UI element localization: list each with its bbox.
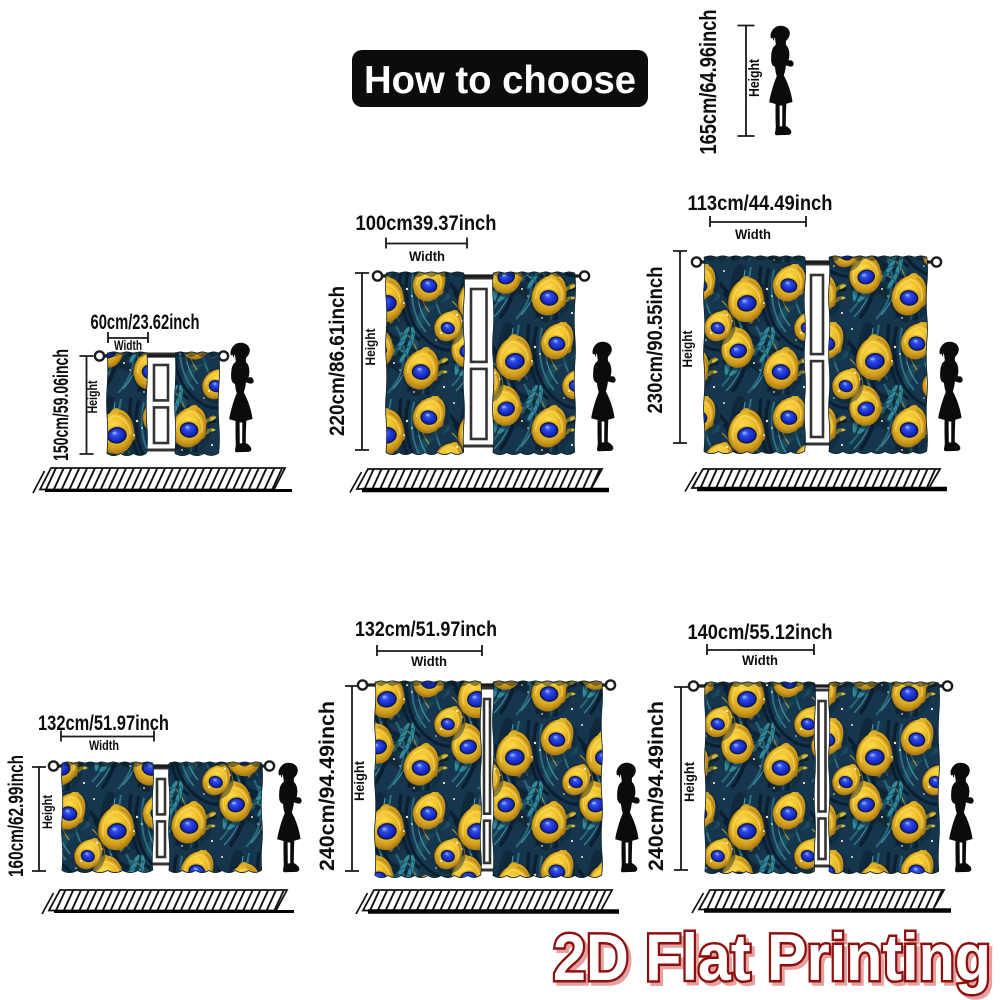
svg-text:132cm/51.97inch: 132cm/51.97inch <box>38 712 169 735</box>
svg-text:Height: Height <box>679 330 695 367</box>
svg-text:113cm/44.49inch: 113cm/44.49inch <box>688 192 833 215</box>
svg-text:Height: Height <box>362 328 378 365</box>
svg-text:2D Flat Printing: 2D Flat Printing <box>553 920 991 994</box>
svg-text:160cm/62.99inch: 160cm/62.99inch <box>5 755 28 877</box>
svg-text:Height: Height <box>681 762 697 802</box>
svg-text:60cm/23.62inch: 60cm/23.62inch <box>91 311 200 334</box>
svg-text:150cm/59.06inch: 150cm/59.06inch <box>50 349 73 461</box>
svg-text:240cm/94.49inch: 240cm/94.49inch <box>645 701 668 871</box>
svg-text:Height: Height <box>84 380 100 413</box>
svg-text:Height: Height <box>746 59 763 97</box>
svg-text:How to choose: How to choose <box>364 59 636 102</box>
svg-text:165cm/64.96inch: 165cm/64.96inch <box>695 10 721 155</box>
svg-text:Height: Height <box>351 761 367 801</box>
svg-text:220cm/86.61inch: 220cm/86.61inch <box>326 286 349 436</box>
svg-text:Width: Width <box>742 652 778 668</box>
svg-text:Width: Width <box>89 737 119 753</box>
svg-text:100cm39.37inch: 100cm39.37inch <box>356 212 497 235</box>
svg-text:Width: Width <box>411 653 447 669</box>
svg-text:Width: Width <box>114 337 142 353</box>
svg-text:Width: Width <box>735 226 771 242</box>
svg-text:230cm/90.55inch: 230cm/90.55inch <box>644 267 667 414</box>
svg-text:132cm/51.97inch: 132cm/51.97inch <box>355 618 497 641</box>
svg-text:140cm/55.12inch: 140cm/55.12inch <box>688 621 833 644</box>
svg-text:240cm/94.49inch: 240cm/94.49inch <box>316 701 339 871</box>
svg-text:Height: Height <box>39 795 55 829</box>
svg-text:Width: Width <box>409 248 445 264</box>
